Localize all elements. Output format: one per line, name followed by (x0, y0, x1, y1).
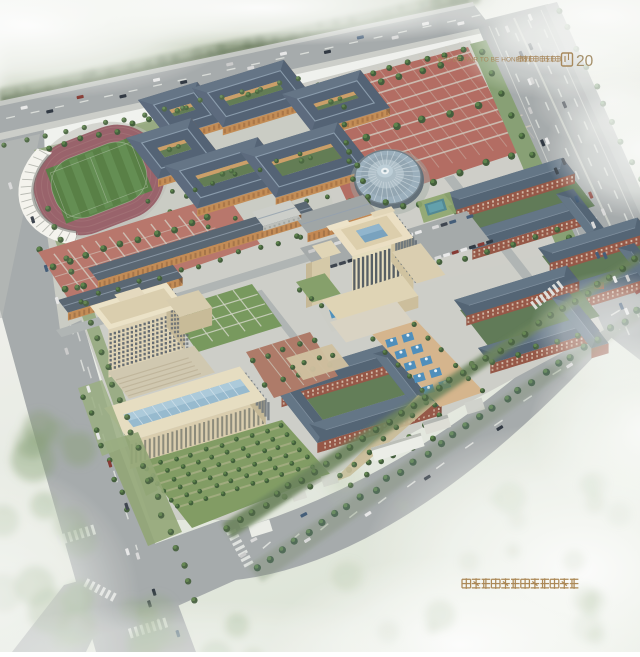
svg-text:◆TO BE FAIR TO BE HONEST/: ◆TO BE FAIR TO BE HONEST/ (437, 57, 530, 64)
svg-text:20: 20 (576, 53, 594, 70)
